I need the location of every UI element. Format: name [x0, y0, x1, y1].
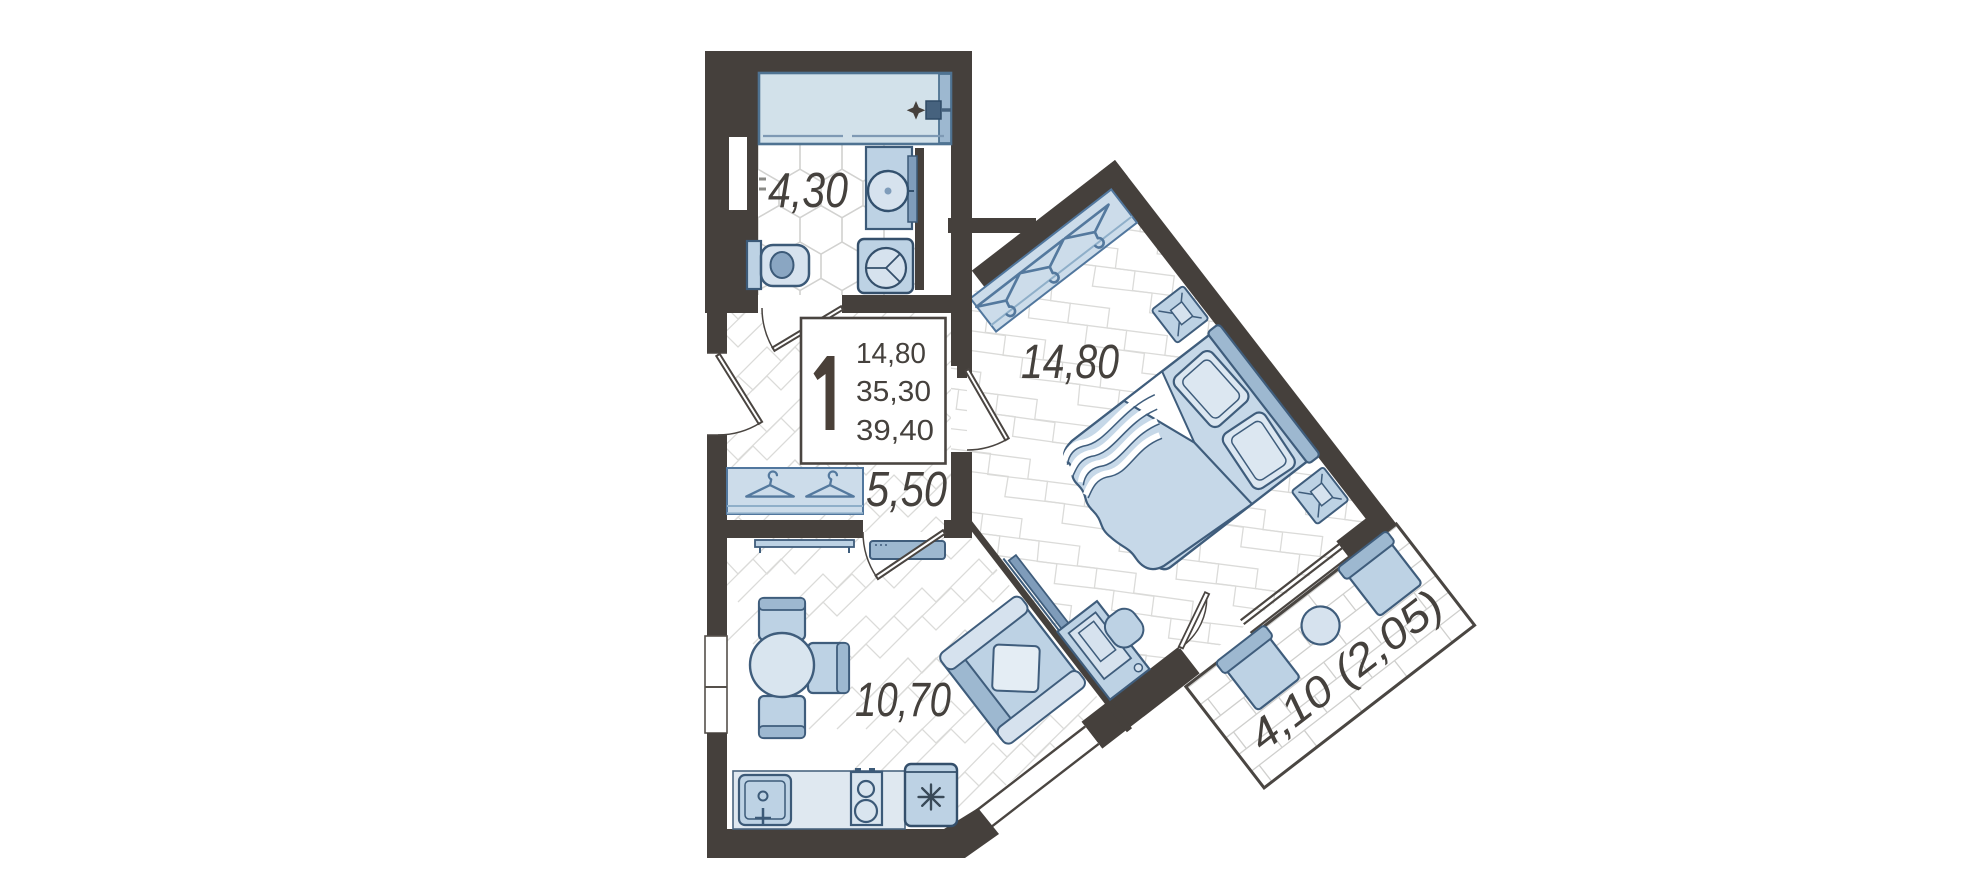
svg-text:14,80: 14,80	[856, 338, 926, 370]
svg-text:35,30: 35,30	[856, 376, 931, 408]
svg-text:10,70: 10,70	[855, 674, 951, 727]
svg-text:14,80: 14,80	[1021, 336, 1119, 389]
svg-text:4,30: 4,30	[768, 164, 848, 218]
svg-text:39,40: 39,40	[856, 415, 934, 447]
svg-text:5,50: 5,50	[866, 463, 947, 517]
